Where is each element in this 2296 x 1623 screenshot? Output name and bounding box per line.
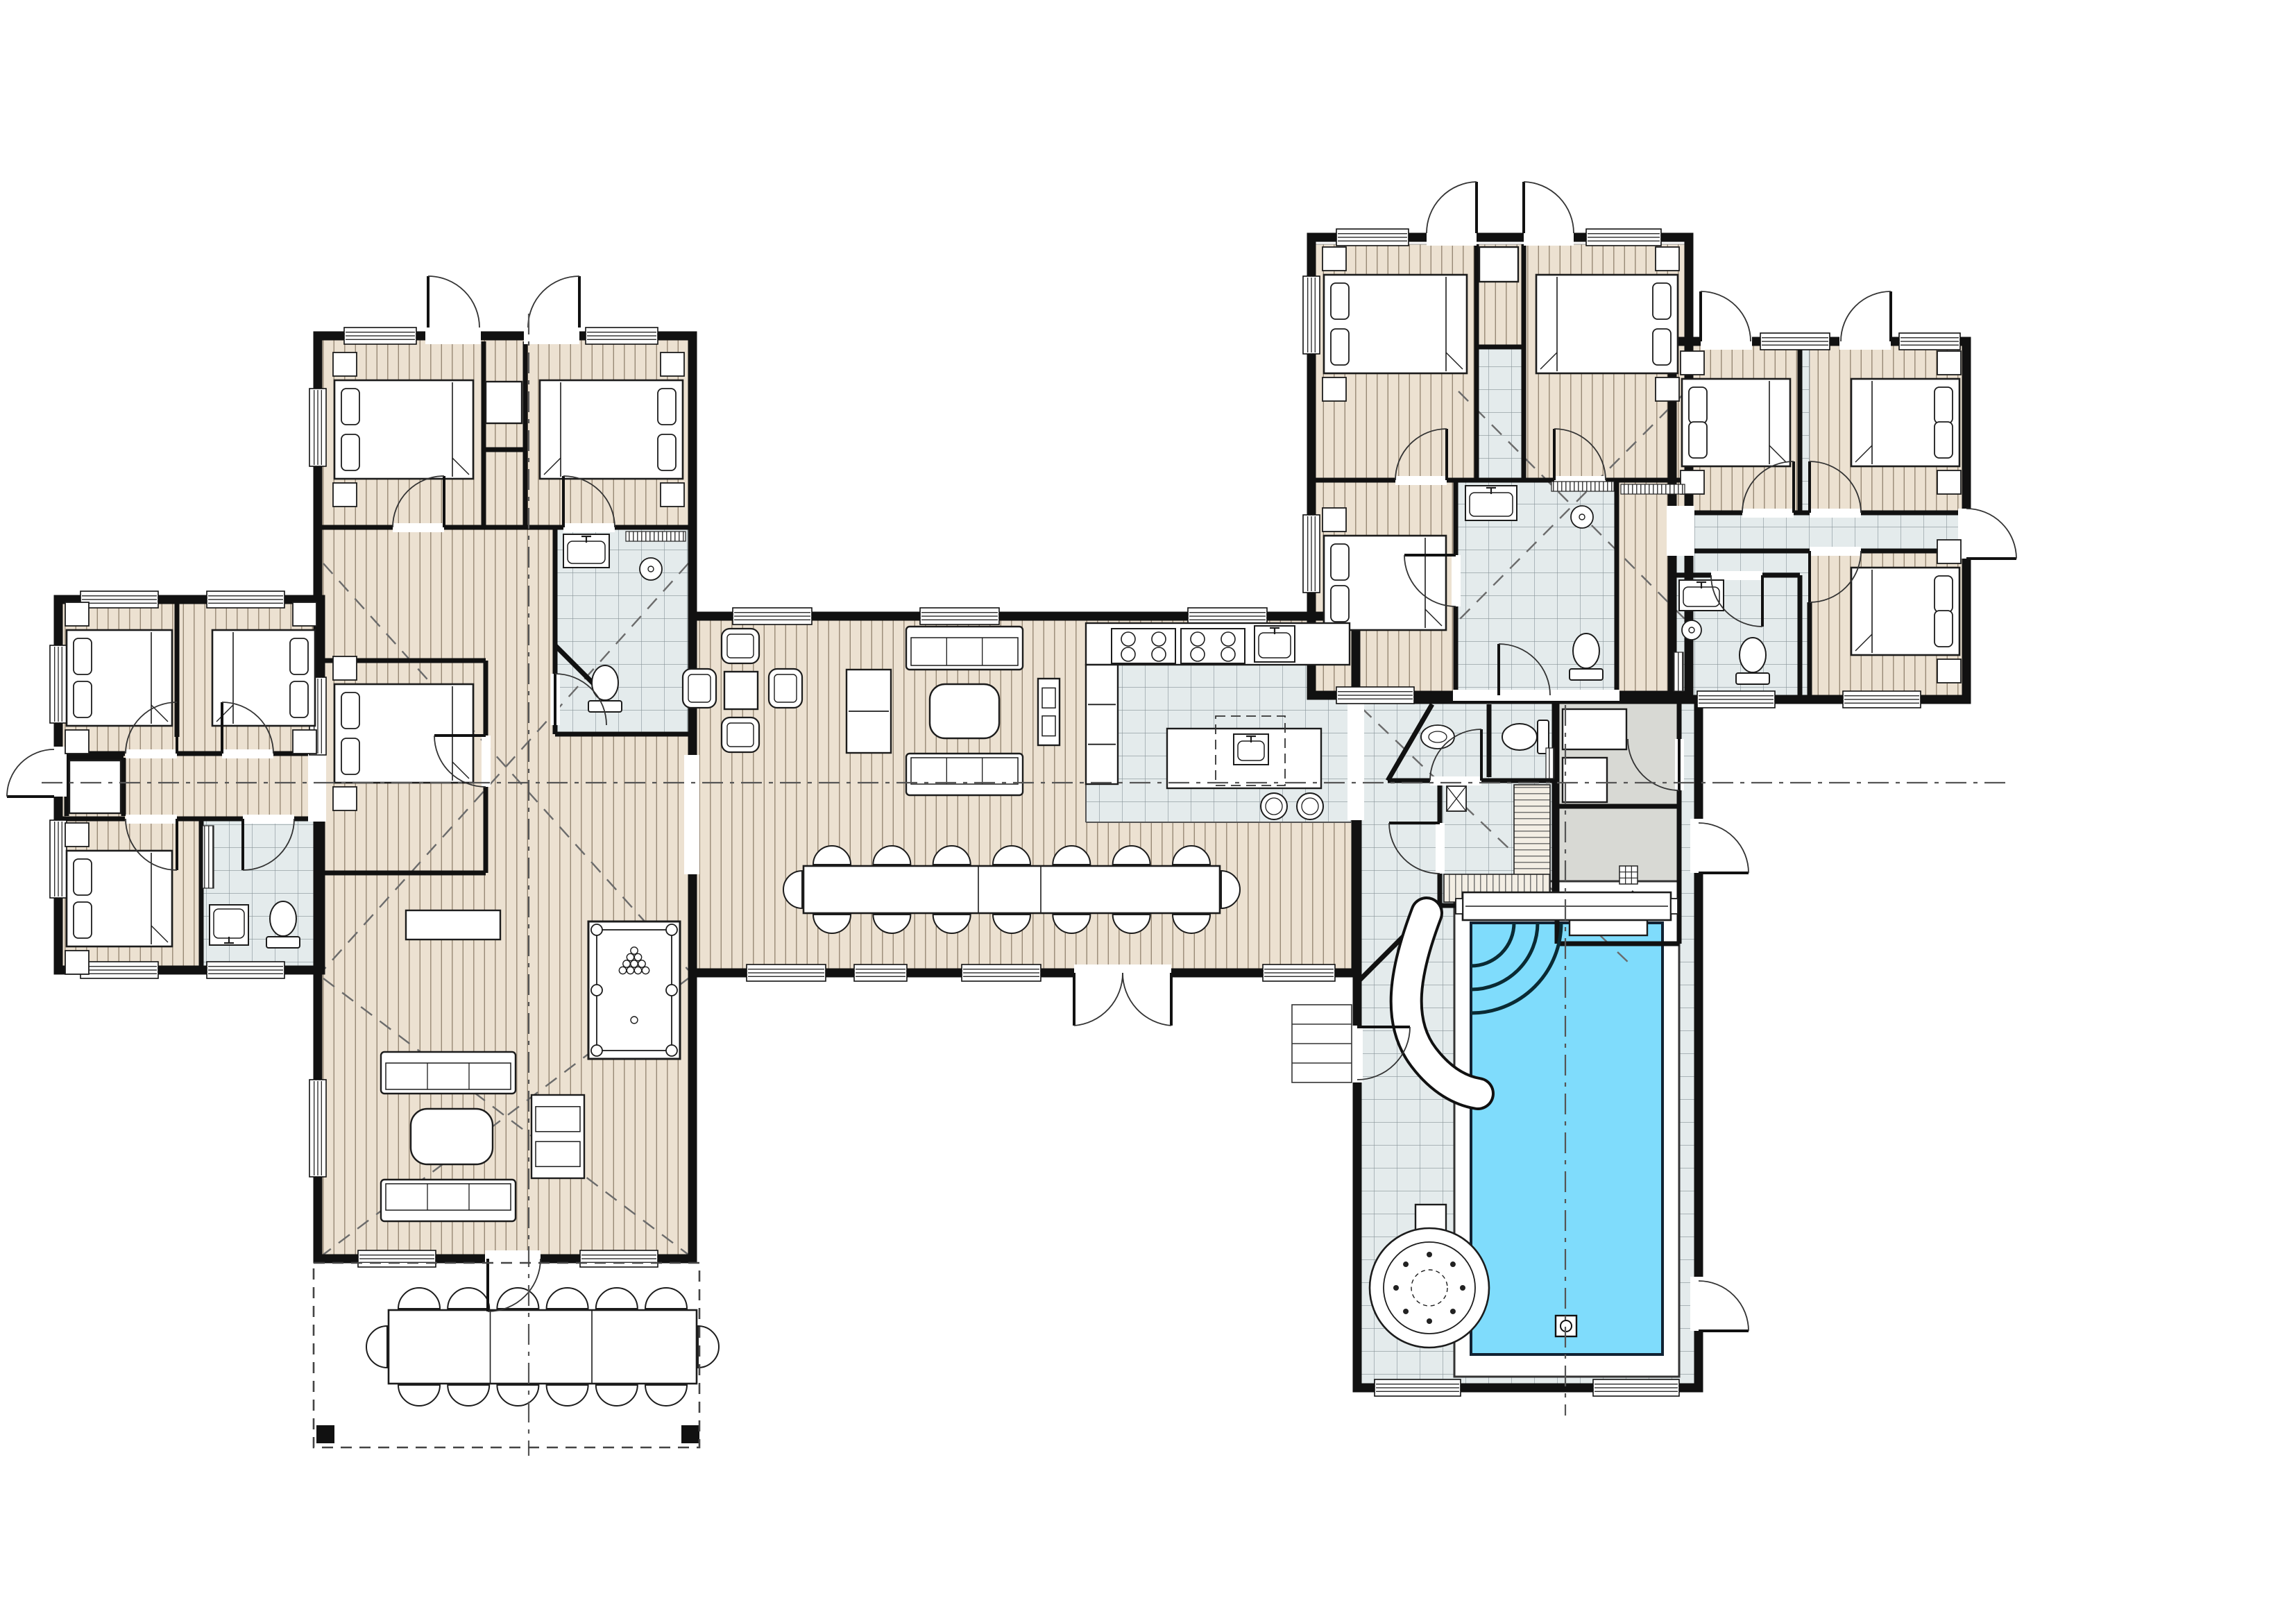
kitchen-tall-unit bbox=[1086, 665, 1118, 784]
window bbox=[207, 591, 284, 608]
dinette-chair-s bbox=[722, 717, 759, 752]
dinette-chair-w bbox=[683, 669, 716, 708]
entry-b2-door bbox=[528, 276, 579, 328]
patio-post-2 bbox=[681, 1425, 699, 1443]
wall-opening bbox=[1427, 229, 1477, 246]
utility-a-seat bbox=[1563, 758, 1607, 802]
window bbox=[1593, 1379, 1679, 1396]
window bbox=[1843, 691, 1921, 708]
coffee-table-hall bbox=[930, 684, 999, 738]
pool-water bbox=[1471, 923, 1663, 1354]
window bbox=[586, 328, 658, 344]
window bbox=[1336, 229, 1409, 246]
sauna-heater bbox=[1447, 786, 1466, 811]
window bbox=[358, 1250, 436, 1267]
radiator-bath-g bbox=[1551, 482, 1614, 491]
window bbox=[733, 608, 812, 624]
bookcase bbox=[847, 670, 891, 753]
window bbox=[920, 608, 999, 624]
wall-opening bbox=[393, 523, 444, 532]
wall-opening bbox=[684, 755, 699, 874]
wall-opening bbox=[1701, 333, 1752, 350]
wall-opening bbox=[1430, 776, 1481, 785]
window bbox=[207, 962, 284, 978]
window bbox=[1586, 229, 1661, 246]
window bbox=[580, 1250, 658, 1267]
chair bbox=[698, 1326, 719, 1368]
closet-g bbox=[1479, 247, 1518, 282]
wall-opening bbox=[243, 815, 294, 824]
pool-wc-sink bbox=[1421, 725, 1454, 749]
window bbox=[50, 645, 67, 723]
radiator-pool-wc bbox=[1546, 748, 1554, 779]
wall-opening bbox=[1742, 509, 1794, 518]
bath-g-shower-basin bbox=[1571, 506, 1593, 528]
wall-opening bbox=[1810, 509, 1861, 518]
dinette-table bbox=[724, 672, 758, 709]
bar-stool-2 bbox=[1297, 793, 1323, 819]
window bbox=[309, 389, 326, 466]
wall-opening bbox=[563, 523, 615, 532]
wall-opening bbox=[126, 749, 177, 758]
pool-cover-roller bbox=[1456, 892, 1678, 920]
window bbox=[1336, 687, 1414, 704]
bar-stool-1 bbox=[1261, 793, 1287, 819]
window bbox=[854, 965, 907, 981]
wall-opening bbox=[1667, 506, 1694, 556]
floor-plan bbox=[0, 0, 2296, 1623]
bath-left-sink bbox=[210, 905, 248, 945]
wall-opening bbox=[1499, 690, 1551, 701]
window bbox=[962, 965, 1041, 981]
sofa-lounge-south bbox=[381, 1180, 516, 1221]
wall-opening bbox=[524, 328, 579, 344]
coffee-table-lounge bbox=[411, 1109, 493, 1164]
wall-opening bbox=[222, 749, 273, 758]
wall-opening bbox=[1395, 476, 1447, 485]
cooktop-1 bbox=[1112, 629, 1175, 663]
bath-left-floor bbox=[201, 819, 319, 969]
entry-g1-door bbox=[1427, 182, 1477, 233]
hot-tub bbox=[1370, 1228, 1489, 1348]
island-sink bbox=[1234, 734, 1268, 765]
wall-opening bbox=[126, 815, 177, 824]
floor-drain bbox=[1619, 866, 1638, 884]
wall-opening bbox=[485, 1250, 541, 1267]
entry-steps bbox=[1292, 1005, 1352, 1082]
window bbox=[50, 820, 67, 898]
utility-a-table bbox=[1563, 709, 1626, 749]
wall-opening bbox=[425, 328, 481, 344]
bath-h-sink bbox=[1679, 580, 1724, 611]
closet-b bbox=[486, 382, 522, 423]
window bbox=[344, 328, 416, 344]
wall-opening bbox=[1524, 229, 1574, 246]
window bbox=[80, 591, 158, 608]
radiator-bath-west bbox=[626, 532, 686, 541]
window bbox=[747, 965, 826, 981]
wall-opening bbox=[482, 736, 491, 787]
window bbox=[1263, 965, 1335, 981]
entry-b1-door bbox=[428, 276, 479, 328]
closet-left-wing bbox=[69, 760, 121, 813]
billiard-table bbox=[588, 921, 680, 1059]
bath-g-sink bbox=[1465, 486, 1517, 520]
window bbox=[1899, 333, 1960, 350]
cooktop-2 bbox=[1181, 629, 1245, 663]
wall-opening bbox=[50, 747, 67, 797]
wall-opening bbox=[1690, 1277, 1707, 1331]
bath-west-sink bbox=[563, 534, 609, 568]
sofa-lounge-north bbox=[381, 1052, 516, 1094]
sofa-hall-south bbox=[906, 754, 1023, 795]
wall-opening bbox=[1711, 571, 1762, 580]
wall-opening bbox=[1347, 704, 1364, 820]
wall-opening bbox=[308, 752, 326, 822]
floor-plan-canvas bbox=[0, 0, 2296, 1623]
window bbox=[1697, 691, 1775, 708]
wall-opening bbox=[1839, 333, 1891, 350]
window bbox=[1303, 515, 1320, 593]
wall-opening bbox=[1810, 547, 1861, 556]
entry-west-door bbox=[7, 749, 54, 797]
window bbox=[1375, 1379, 1461, 1396]
radiator-nook bbox=[1621, 484, 1685, 494]
entry-g2-door bbox=[1524, 182, 1574, 233]
radiator-bath-h bbox=[1674, 652, 1683, 691]
window bbox=[80, 962, 158, 978]
bath-h-shower-basin bbox=[1682, 620, 1701, 640]
sofa-hall-north bbox=[906, 627, 1023, 670]
wall-opening bbox=[1436, 823, 1445, 874]
kitchen-sink bbox=[1255, 626, 1295, 662]
patio-post-1 bbox=[316, 1425, 334, 1443]
tv-cabinet-lounge bbox=[532, 1095, 584, 1178]
dinette-chair-n bbox=[722, 629, 759, 663]
wall-opening bbox=[1352, 1026, 1363, 1082]
tv-cabinet-hall bbox=[1038, 679, 1060, 745]
bath-west-shower-basin bbox=[640, 558, 662, 580]
wall-opening bbox=[1452, 555, 1461, 606]
window bbox=[1188, 608, 1267, 624]
dinette-chair-e bbox=[769, 669, 802, 708]
window bbox=[1760, 333, 1830, 350]
console-table bbox=[406, 910, 500, 940]
wall-opening bbox=[1690, 819, 1707, 873]
window bbox=[1303, 276, 1320, 354]
radiator-bath-left bbox=[203, 826, 214, 888]
window bbox=[309, 1080, 326, 1177]
